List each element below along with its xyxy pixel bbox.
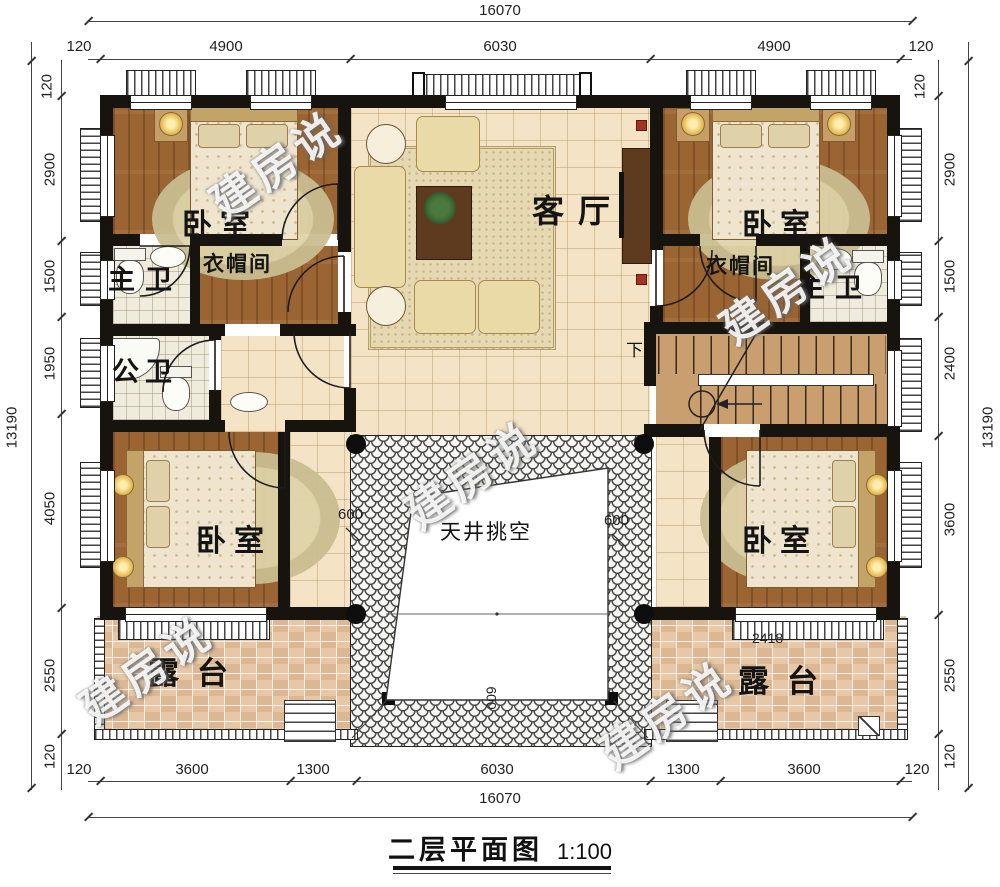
dim-bottom-seg: 3600 [162,762,222,777]
dim-line [968,42,969,790]
wall [644,424,704,437]
wall [100,607,125,620]
dim-line [31,42,32,790]
wall [338,95,351,252]
wall [100,298,113,345]
side-table [366,286,406,326]
drawing-scale: 1:100 [557,839,612,864]
dim-line [61,60,62,790]
pillow [146,506,170,548]
wall [875,607,900,620]
dim-right-bottom120: 120 [943,727,958,787]
window [810,95,872,110]
room-label-public-bath: 公卫 [112,350,178,389]
dim-line [88,59,912,60]
dim-top-seg: 120 [891,39,951,54]
column [346,434,366,454]
stair-handrail [698,374,874,386]
wall [650,306,663,322]
window [690,95,752,110]
annotation-600-right: 600 [604,512,629,529]
room-label-living: 客厅 [532,186,624,232]
pillow [832,460,856,502]
annotation-2418-railing: 2418 [752,630,783,646]
dim-left-seg: 2550 [43,646,58,706]
window [100,135,115,217]
dim-left-total: 13190 [5,398,20,458]
wall [760,424,887,437]
tick [27,783,36,792]
sink [230,392,268,412]
pillow [198,124,240,148]
railing-top-window-4 [806,70,876,98]
armchair [478,280,540,334]
dim-bottom-seg: 6030 [467,762,527,777]
lamp [681,112,705,136]
dim-right-seg: 2550 [943,646,958,706]
drawing-title-text: 二层平面图 [388,835,543,865]
side-table [366,124,406,164]
dim-top-seg: 6030 [470,39,530,54]
wall [650,234,700,246]
dim-top-seg: 4900 [744,39,804,54]
column [346,604,366,624]
tick [908,812,917,821]
window [887,135,902,217]
dim-right-top120: 120 [913,57,928,117]
window [887,470,902,562]
room-label-terrace-right: 露台 [738,656,836,701]
sofa [354,166,406,288]
wall [887,425,900,470]
room-label-bedroom-br: 卧室 [742,516,818,560]
dim-top-seg: 120 [49,39,109,54]
room-label-cloak-left: 衣帽间 [203,248,272,278]
dim-top-total: 16070 [470,3,530,18]
lamp [112,556,134,578]
annotation-600-canopy: 600 [484,686,500,709]
column [634,434,654,454]
window [735,607,877,622]
stair-down-label: 下 [626,336,643,361]
dim-bottom-total: 16070 [470,791,530,806]
dim-bottom-seg: 1300 [283,762,343,777]
wall [644,607,735,620]
lamp [866,474,888,496]
room-label-master-bath-left: 主卫 [108,258,182,297]
lamp [112,474,134,496]
title-underline-thick [393,866,611,870]
railing-right-window-3 [899,338,922,432]
floor-drain [858,716,880,736]
floor-hall-left [221,336,344,432]
wall [209,330,221,340]
room-label-bedroom-bl: 卧室 [196,516,272,560]
railing-top-window-1 [126,70,196,98]
dim-left-bottom120: 120 [43,727,58,787]
wall [310,95,445,108]
title-underline-thin [393,873,611,874]
wall [650,95,663,250]
window [887,260,902,300]
pillow [146,460,170,502]
stair-treads-upper [658,336,886,374]
wall [112,234,140,246]
wall [344,324,356,332]
railing-top-window-2 [246,70,316,98]
railing-terrace-right-edge [897,618,908,740]
dim-left-seg: 4050 [43,479,58,539]
tick [908,16,917,25]
canopy-post [382,692,395,705]
dim-right-seg: 2400 [943,334,958,394]
wall [575,95,690,108]
stair-treads-lower [700,384,886,424]
window [130,95,192,110]
dim-line [88,781,912,782]
dim-left-seg: 1500 [43,247,58,307]
floor-plan: 卧室 卧室 客厅 衣帽间 衣帽间 主卫 主卫 公卫 卧室 卧室 露台 露台 天井… [0,0,1000,887]
pillow [768,124,810,148]
speaker [636,120,647,131]
wall [644,334,656,386]
wall [887,298,900,350]
dim-bottom-seg: 120 [49,762,109,777]
lamp [159,112,183,136]
dim-right-total: 13190 [981,398,996,458]
dim-right-seg: 3600 [943,490,958,550]
speaker [636,274,647,285]
dim-left-seg: 1950 [43,334,58,394]
dim-left-seg: 2900 [43,140,58,200]
wall [887,95,900,135]
wall [100,400,113,470]
dim-bottom-seg: 1300 [653,762,713,777]
dim-right-seg: 2900 [943,140,958,200]
dim-top-seg: 4900 [196,39,256,54]
terrace-steps-left [284,700,336,742]
wall [709,437,721,607]
dim-line [88,817,912,818]
dim-bottom-seg: 120 [887,762,947,777]
wall [190,246,200,330]
lamp [827,112,851,136]
wall [887,215,900,260]
window [445,95,577,110]
column [634,604,654,624]
dim-bottom-seg: 3600 [774,762,834,777]
wall [278,432,290,612]
wall [190,95,250,108]
railing-right-window-1 [899,128,922,222]
wall [112,420,225,432]
window [887,350,902,427]
tick [964,783,973,792]
railing-right-window-4 [899,462,922,568]
dim-line [938,60,939,790]
pillow [832,506,856,548]
tv-cabinet [622,148,652,264]
wall [100,95,113,135]
dim-right-seg: 1500 [943,247,958,307]
canopy-post [605,692,618,705]
dim-left-top120: 120 [40,57,55,117]
armchair [416,116,480,172]
drawing-title: 二层平面图1:100 [360,828,640,867]
wall [344,388,356,432]
wall [750,95,810,108]
pillow [720,124,762,148]
lamp [866,556,888,578]
armchair [414,280,476,334]
plant [424,192,456,224]
dim-line [88,21,912,22]
railing-right-window-2 [899,252,922,306]
window [100,470,115,562]
railing-top-window-3 [686,70,756,98]
annotation-600-left: 600 [338,506,363,523]
